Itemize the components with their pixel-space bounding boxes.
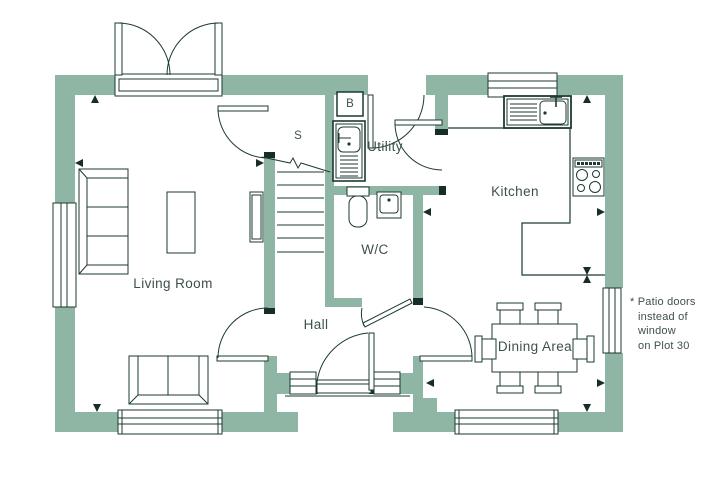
- plot-note: * Patio doors instead of window on Plot …: [630, 295, 715, 353]
- french-doors: [115, 23, 222, 75]
- arrow-right: [597, 208, 605, 216]
- sofa-large: [79, 169, 128, 274]
- arrow-right: [597, 379, 605, 387]
- room-label-kitchen: Kitchen: [480, 184, 550, 199]
- arrow-left: [423, 208, 431, 216]
- room-label-living-room: Living Room: [100, 276, 246, 291]
- living-room-upper-door: [218, 106, 268, 158]
- room-label-hall: Hall: [281, 317, 351, 332]
- toilet: [347, 187, 369, 227]
- arrow-down: [583, 404, 591, 412]
- floorplan-drawing: [0, 0, 715, 481]
- plot-note-line: * Patio doors: [630, 295, 715, 310]
- kitchen-sink: [504, 96, 571, 128]
- arrow-left: [75, 159, 83, 167]
- kitchen-counter-edge: [448, 128, 605, 275]
- arrow-left: [426, 379, 434, 387]
- store-marker: S: [288, 129, 308, 144]
- plot-note-line: window: [630, 324, 715, 339]
- room-label-wc: W/C: [345, 242, 405, 257]
- sofa-small: [129, 356, 208, 404]
- arrow-down: [93, 404, 101, 412]
- fixtures: [333, 92, 604, 227]
- wash-basin: [377, 192, 401, 218]
- arrow-up: [91, 95, 99, 103]
- arrow-up: [583, 95, 591, 103]
- porch-sidelight-right: [374, 372, 400, 394]
- wc-door: [361, 299, 412, 327]
- plot-note-line: on Plot 30: [630, 339, 715, 354]
- floorplan-canvas: Living Room Hall W/C Utility Kitchen Din…: [0, 0, 715, 481]
- arrow-down: [583, 267, 591, 275]
- kitchen-window: [488, 73, 557, 97]
- hob: [573, 158, 604, 196]
- living-room-lower-door: [217, 308, 268, 361]
- living-room-side-window: [53, 203, 76, 307]
- coffee-table: [167, 192, 195, 253]
- plot-note-line: instead of: [630, 310, 715, 325]
- porch-sidelight-left: [290, 372, 316, 394]
- tv-unit: [250, 192, 263, 242]
- arrow-right: [256, 159, 264, 167]
- living-room-front-window: [118, 410, 222, 434]
- boiler-marker: B: [337, 97, 363, 112]
- front-door-threshold: [317, 380, 371, 393]
- dining-front-window: [455, 410, 558, 434]
- dining-side-window: [603, 288, 621, 353]
- room-label-dining-area: Dining Area: [495, 339, 575, 354]
- hall-dining-door: [420, 307, 472, 361]
- arrow-up: [583, 275, 591, 283]
- room-label-utility: Utility: [355, 139, 415, 154]
- french-door-opening: [115, 74, 222, 96]
